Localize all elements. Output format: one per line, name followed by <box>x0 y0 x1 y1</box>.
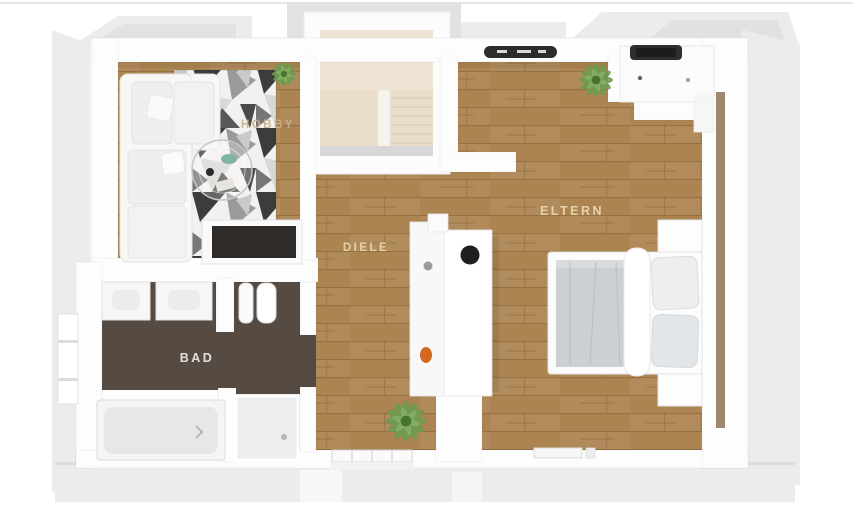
wall-stub-eltern <box>440 152 516 172</box>
drain-fixture <box>424 262 433 271</box>
room-label-diele: DIELE <box>343 242 389 254</box>
throw-pillow <box>160 150 185 175</box>
wall-bath-hall-lower <box>300 387 316 452</box>
wall-hall-eltern <box>440 56 458 160</box>
pillow <box>651 314 699 368</box>
toilet <box>239 283 276 323</box>
pillow <box>651 256 700 310</box>
laptop <box>630 45 682 60</box>
window-bottom-hall <box>330 450 414 470</box>
sideboard <box>202 220 302 264</box>
room-label-eltern: ELTERN <box>540 204 604 218</box>
nightstand-bottom <box>658 374 702 406</box>
wall-hall-bottom <box>436 388 482 462</box>
table-decor <box>206 168 214 176</box>
table-plant <box>221 154 237 164</box>
round-basin <box>461 246 480 265</box>
basin <box>112 290 140 310</box>
wall-stub-toilet <box>216 278 234 332</box>
floor-plan-image: HOBBY DIELE ELTERN BAD <box>0 0 853 520</box>
bed <box>548 248 702 376</box>
window-bottom-eltern <box>534 448 595 458</box>
basin <box>168 290 200 310</box>
washbasin-unit <box>410 214 499 396</box>
bath-doorway <box>300 335 316 387</box>
stair-landing-edge <box>320 146 433 156</box>
room-label-hobby: HOBBY <box>241 119 295 131</box>
orange-decor <box>420 347 432 363</box>
duvet-roll <box>624 248 650 376</box>
throw-pillow <box>146 94 174 122</box>
shower-drain <box>281 434 287 440</box>
desk-item <box>638 76 642 80</box>
shower <box>236 396 298 460</box>
coffee-table <box>192 140 252 200</box>
floor-plan-svg: HOBBY DIELE ELTERN BAD <box>0 0 853 520</box>
nightstand-top <box>658 220 702 252</box>
skylight-window <box>484 46 557 58</box>
wall-left-upper <box>92 38 118 270</box>
room-label-bad: BAD <box>180 351 215 365</box>
bathtub <box>97 400 225 460</box>
window-left-wall <box>58 314 78 404</box>
desk-item <box>686 78 690 82</box>
wall-bath-hall-upper <box>300 282 316 335</box>
stair-newel-wall <box>378 90 390 152</box>
wardrobe-strip <box>716 92 725 428</box>
